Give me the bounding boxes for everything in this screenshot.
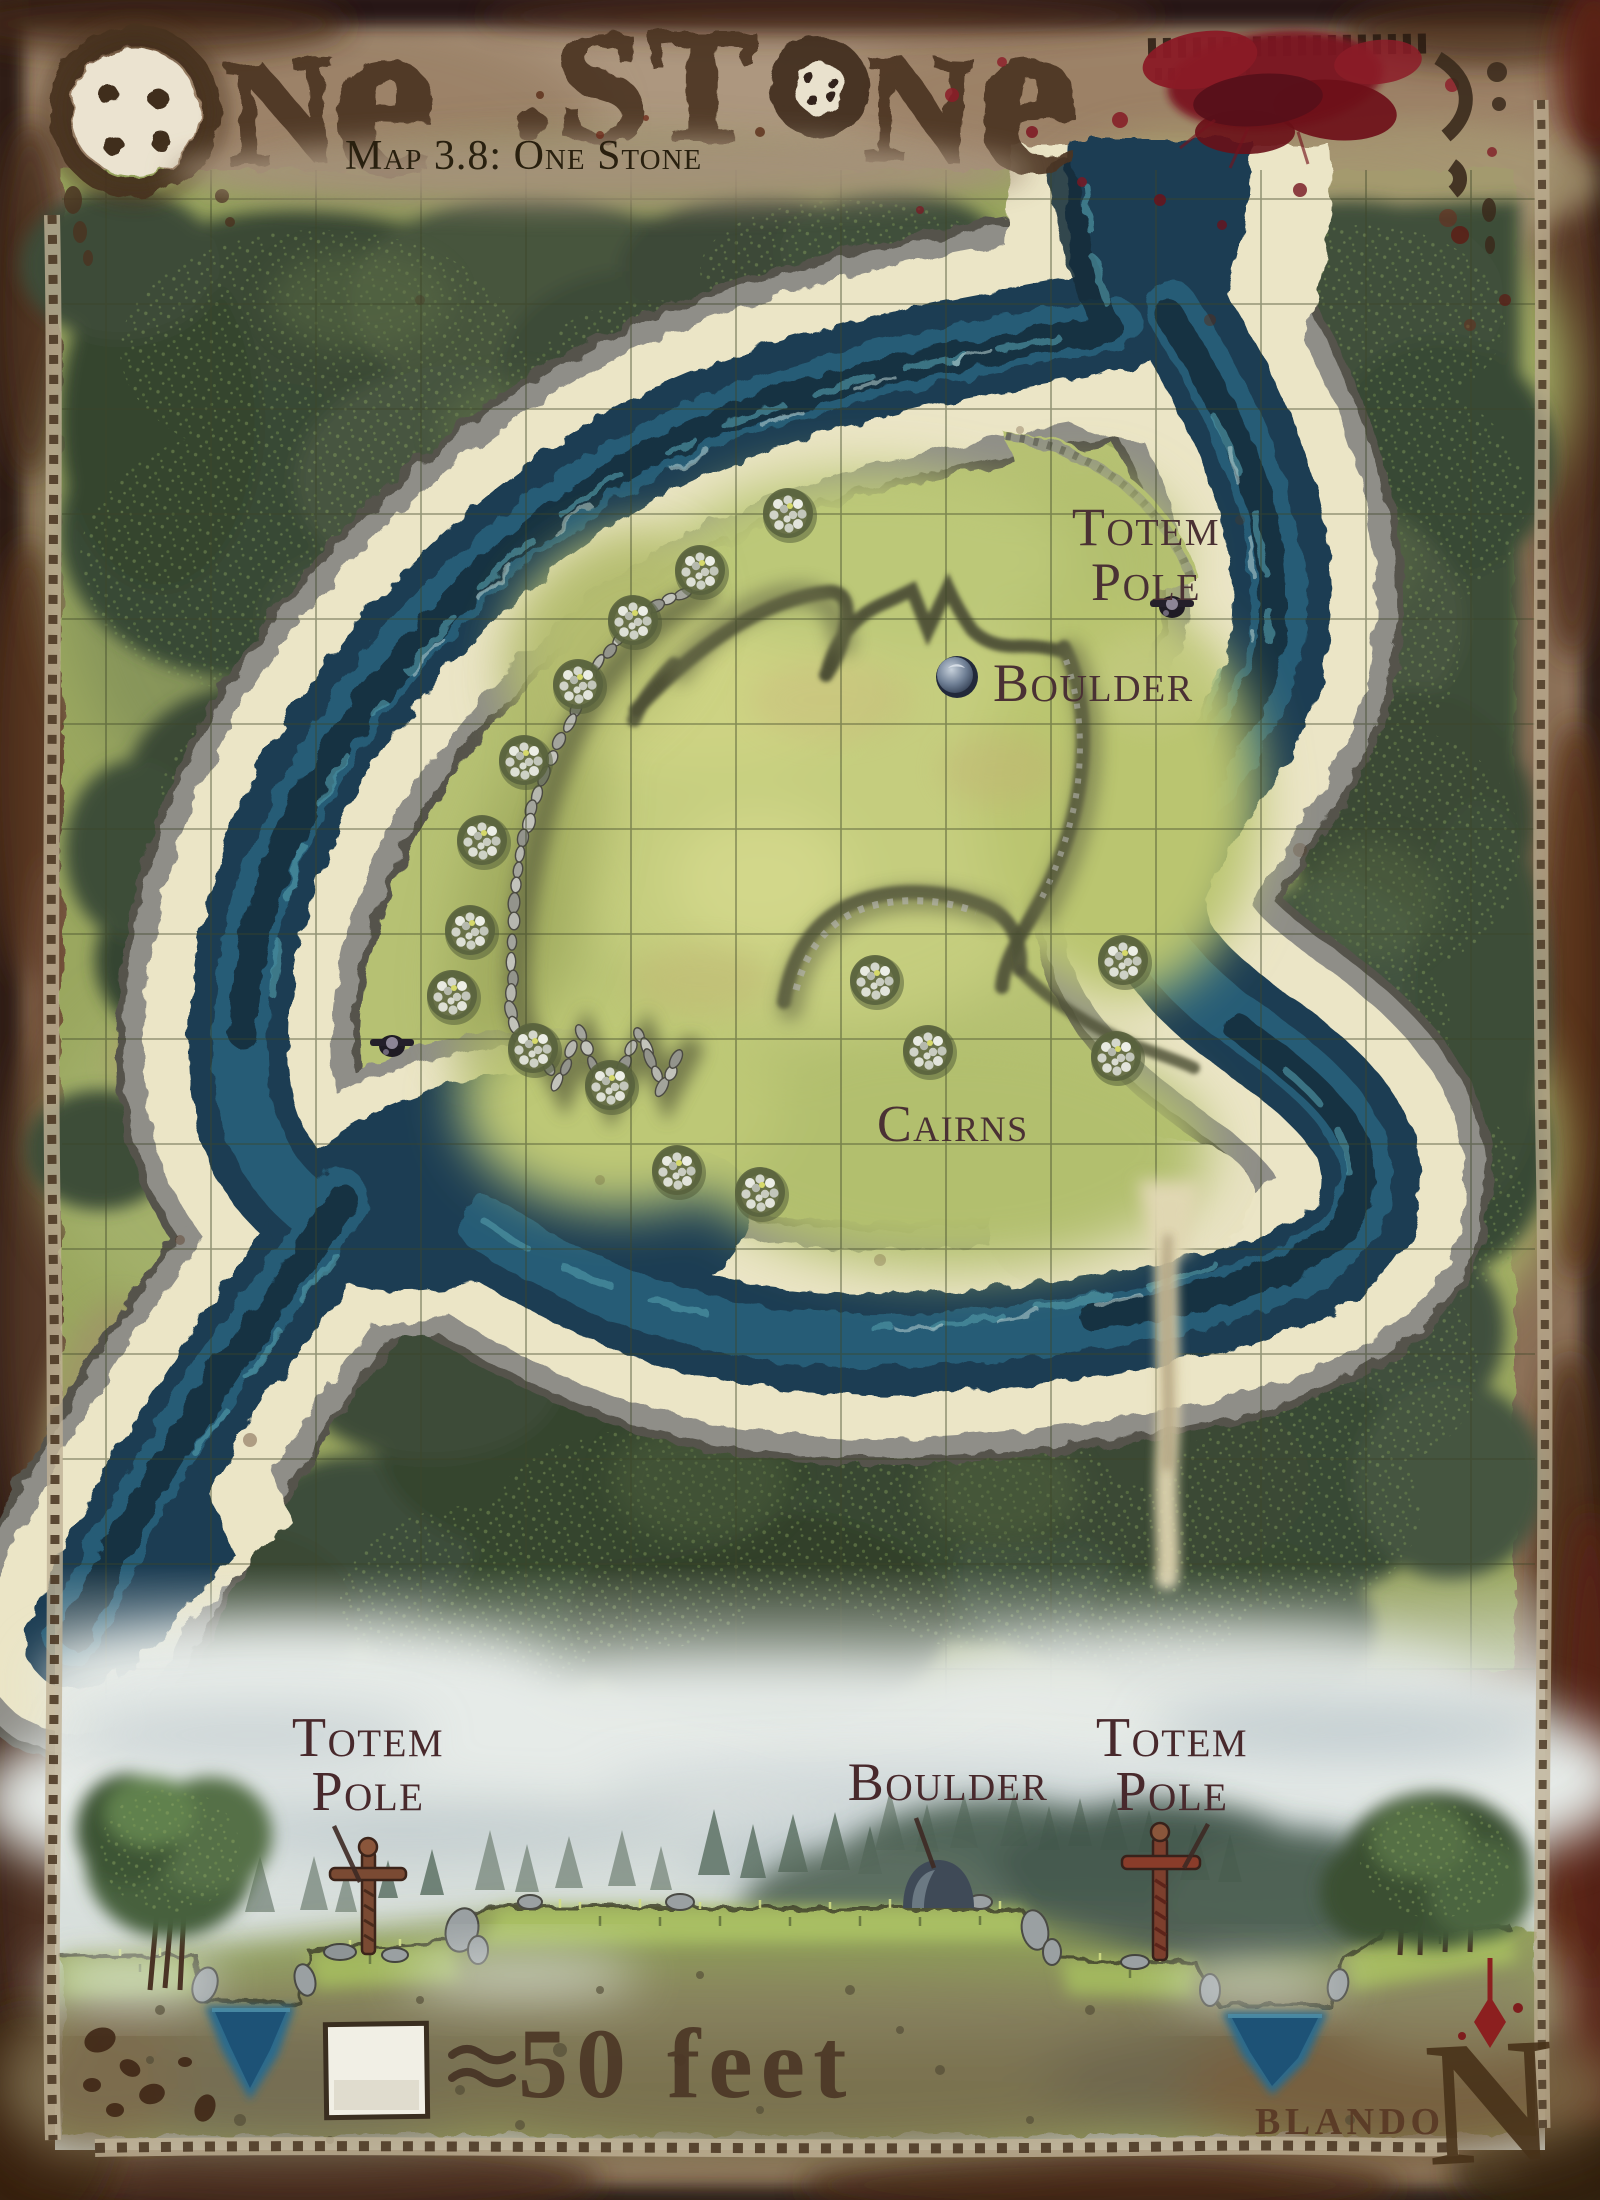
svg-text:Pole: Pole bbox=[312, 1761, 425, 1823]
svg-text:Pole: Pole bbox=[1116, 1761, 1229, 1823]
svg-text:Totem: Totem bbox=[292, 1707, 444, 1769]
svg-text:Pole: Pole bbox=[1091, 552, 1201, 612]
svg-text:e: e bbox=[971, 0, 1082, 222]
svg-text:Map 3.8: One Stone: Map 3.8: One Stone bbox=[345, 133, 702, 179]
svg-text:Boulder: Boulder bbox=[848, 1752, 1049, 1812]
svg-text:50 feet: 50 feet bbox=[518, 2008, 854, 2119]
svg-text:Totem: Totem bbox=[1072, 497, 1220, 557]
svg-text:Totem: Totem bbox=[1096, 1707, 1248, 1769]
svg-text:Cairns: Cairns bbox=[877, 1096, 1029, 1153]
svg-text:Boulder: Boulder bbox=[993, 653, 1194, 713]
svg-text:BLANDO: BLANDO bbox=[1255, 2101, 1445, 2143]
